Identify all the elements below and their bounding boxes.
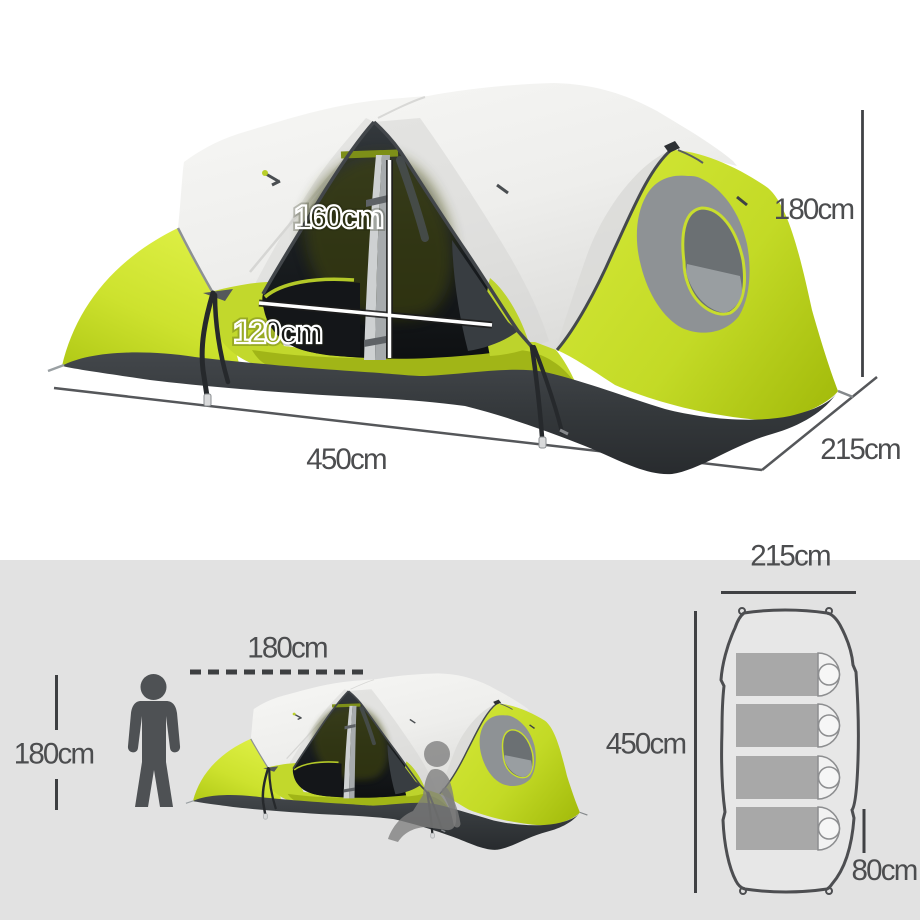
- svg-text:160cm: 160cm: [294, 199, 383, 235]
- svg-text:80cm: 80cm: [852, 854, 917, 887]
- svg-text:215cm: 215cm: [820, 433, 900, 466]
- svg-text:450cm: 450cm: [306, 443, 386, 476]
- svg-text:215cm: 215cm: [750, 540, 830, 573]
- svg-text:450cm: 450cm: [606, 728, 686, 761]
- svg-text:180cm: 180cm: [774, 193, 854, 226]
- svg-text:180cm: 180cm: [247, 632, 327, 665]
- svg-text:180cm: 180cm: [14, 738, 94, 771]
- svg-text:120cm: 120cm: [233, 314, 322, 350]
